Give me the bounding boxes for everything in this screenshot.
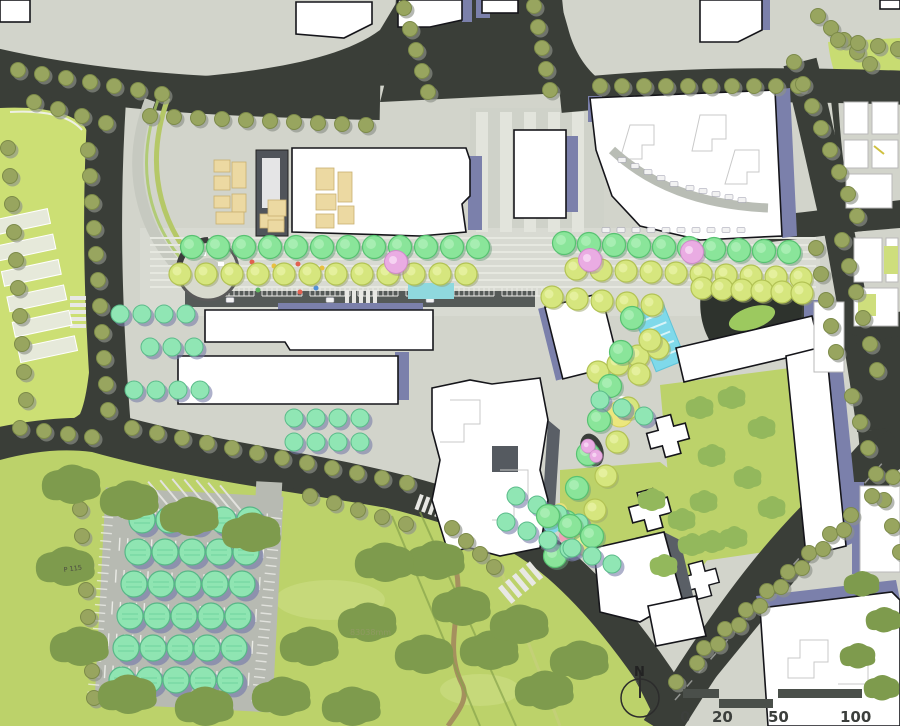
scale-tick-100: 100 [840, 708, 871, 726]
scale-tick-20: 20 [712, 708, 733, 726]
scale-tick-50: 50 [768, 708, 789, 726]
area-label: 83038mm [350, 628, 391, 637]
building-corner-nw [0, 0, 30, 22]
building-north-3 [482, 0, 518, 13]
scale-tick-0: 0 [680, 708, 690, 726]
site-plan-svg: 83038mm P 115 N 0 20 50 100 [0, 0, 900, 726]
north-label: N [634, 665, 645, 680]
site-plan-canvas: 83038mm P 115 N 0 20 50 100 [0, 0, 900, 726]
building-central-small [514, 130, 566, 218]
